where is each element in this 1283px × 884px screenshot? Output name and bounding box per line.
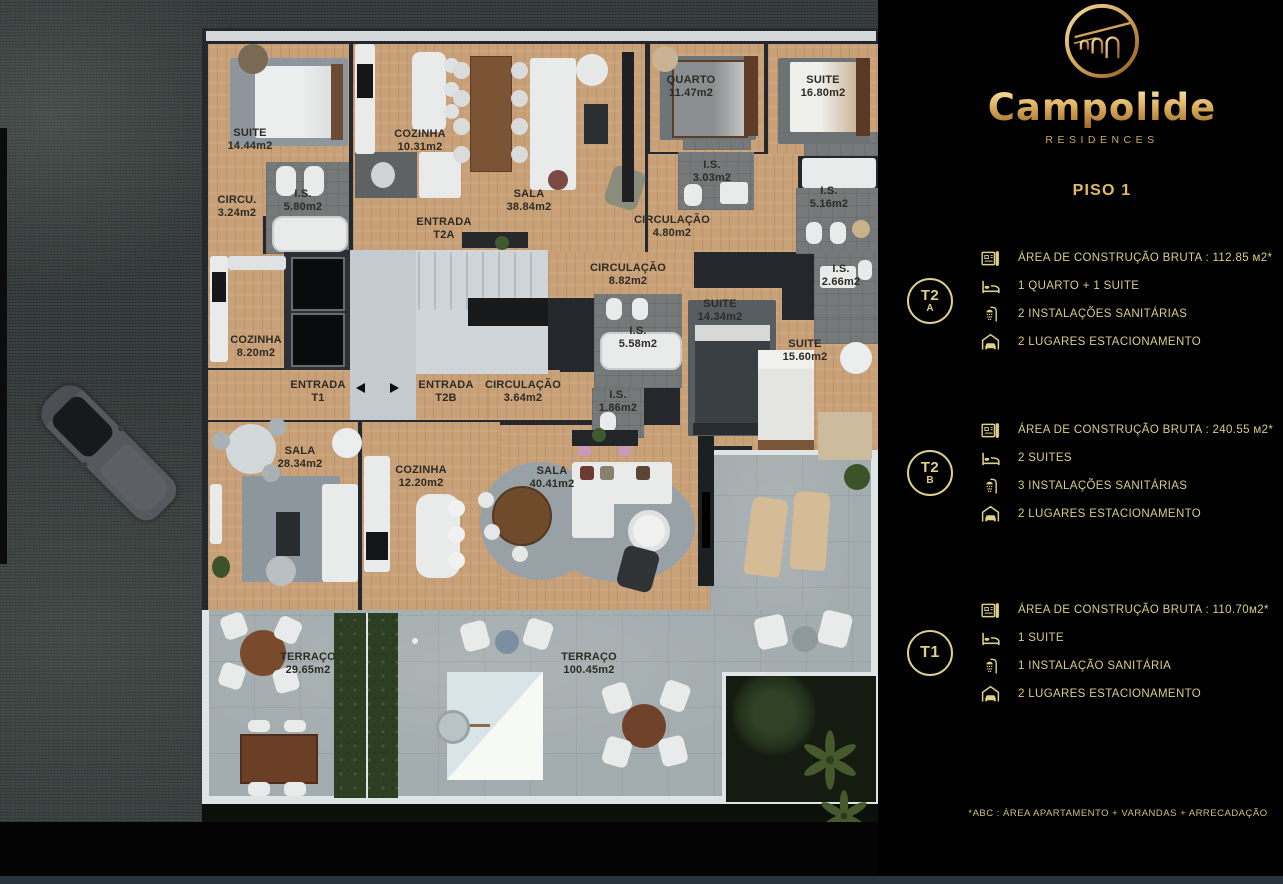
unit-feature-text: ÁREA DE CONSTRUÇÃO BRUTA : 240.55 м2* <box>1018 424 1273 436</box>
room-area: 5.58m2 <box>619 338 658 351</box>
chair <box>511 146 528 163</box>
brand-subtitle: RESIDENCES <box>922 134 1282 146</box>
dining-table <box>470 56 512 172</box>
panel-header: Campolide RESIDENCES PISO 1 <box>922 0 1282 200</box>
round-dining-table <box>492 486 552 546</box>
elevator-2 <box>291 313 345 367</box>
room-label: CIRCULAÇÃO4.80m2 <box>634 214 710 240</box>
bed-headboard <box>744 56 758 136</box>
shower-icon <box>980 656 1001 677</box>
garage-icon <box>980 332 1001 353</box>
floor-title: PISO 1 <box>922 182 1282 200</box>
room-label: TERRAÇO100.45m2 <box>561 651 617 677</box>
room-area: 8.20m2 <box>230 347 282 360</box>
chair <box>212 432 230 450</box>
unit-feature-text: 2 LUGARES ESTACIONAMENTO <box>1018 508 1201 520</box>
stool <box>618 446 631 456</box>
bathtub <box>272 216 348 252</box>
room-area: 2.66m2 <box>822 276 861 289</box>
room-name: I.S. <box>619 325 658 338</box>
room-name: I.S. <box>693 159 732 172</box>
toilet <box>806 222 822 244</box>
abc-footnote: *ABC : ÁREA APARTAMENTO + VARANDAS + ARR… <box>968 808 1268 819</box>
unit-feature-row: 2 LUGARES ESTACIONAMENTO <box>980 504 1201 524</box>
unit-section-t2a: T2 A ÁREA DE CONSTRUÇÃO BRUTA : 112.85 м… <box>878 246 1283 356</box>
basket <box>852 220 870 238</box>
unit-feature-row: 2 INSTALAÇÕES SANITÁRIAS <box>980 304 1187 324</box>
sun-lounger <box>789 491 830 571</box>
room-label: SALA38.84m2 <box>507 188 552 214</box>
chair <box>453 62 470 79</box>
car-mirror <box>117 424 125 432</box>
room-name: ENTRADA <box>416 216 471 229</box>
armchair <box>840 342 872 374</box>
room-name: COZINHA <box>230 334 282 347</box>
bathtub <box>802 158 876 188</box>
room-name: TERRAÇO <box>280 651 336 664</box>
unit-feature-row: 2 LUGARES ESTACIONAMENTO <box>980 684 1201 704</box>
room-label: SUITE14.44m2 <box>228 127 273 153</box>
round-chair <box>576 54 608 86</box>
room-area: 28.34m2 <box>278 458 323 471</box>
room-area: 3.64m2 <box>485 392 561 405</box>
render-bottom-black <box>0 822 880 884</box>
unit-feature-text: 2 LUGARES ESTACIONAMENTO <box>1018 336 1201 348</box>
room-name: SALA <box>278 445 323 458</box>
room-name: ENTRADA <box>290 379 345 392</box>
shower-icon <box>980 304 1001 325</box>
kitchen-counter <box>355 44 375 154</box>
chair <box>512 546 528 562</box>
room-label: I.S.2.66m2 <box>822 263 861 289</box>
room-area: 14.34m2 <box>698 311 743 324</box>
room-label: SALA40.41m2 <box>530 465 575 491</box>
room-name: CIRCULAÇÃO <box>485 379 561 392</box>
bed-headboard <box>331 64 343 140</box>
unit-feature-text: 1 SUITE <box>1018 632 1064 644</box>
room-name: SUITE <box>698 298 743 311</box>
unit-feature-row: 2 LUGARES ESTACIONAMENTO <box>980 332 1201 352</box>
unit-feature-text: 3 INSTALAÇÕES SANITÁRIAS <box>1018 480 1187 492</box>
room-label: I.S.3.03m2 <box>693 159 732 185</box>
room-label: ENTRADAT1 <box>290 379 345 405</box>
pillow <box>580 466 594 480</box>
room-area: 12.20m2 <box>395 477 447 490</box>
room-label: SALA28.34m2 <box>278 445 323 471</box>
campolide-floorplan-page: SUITE14.44m2 COZINHA10.31m2 SALA38.84m2 … <box>0 0 1283 884</box>
unit-feature-text: ÁREA DE CONSTRUÇÃO BRUTA : 112.85 м2* <box>1018 252 1272 264</box>
room-label: COZINHA12.20m2 <box>395 464 447 490</box>
palm-tree <box>798 728 862 792</box>
room-area: 5.16m2 <box>810 198 849 211</box>
shower-icon <box>980 476 1001 497</box>
chair <box>484 524 500 540</box>
bottom-edge-strip <box>0 876 1283 884</box>
garage-icon <box>980 684 1001 705</box>
room-area: 14.44m2 <box>228 140 273 153</box>
unit-badge-t2a: T2 A <box>907 278 953 324</box>
planter-divider <box>366 613 368 798</box>
room-name: TERRAÇO <box>561 651 617 664</box>
chair <box>511 90 528 107</box>
terrace-chair <box>284 720 306 732</box>
badge-letter: A <box>926 304 933 314</box>
coffee-table <box>276 512 300 556</box>
unit-feature-text: 1 INSTALAÇÃO SANITÁRIA <box>1018 660 1171 672</box>
room-area: T2B <box>418 392 473 405</box>
room-label: SUITE14.34m2 <box>698 298 743 324</box>
floorplan-icon <box>980 248 1001 269</box>
unit-feature-row: ÁREA DE CONSTRUÇÃO BRUTA : 112.85 м2* <box>980 248 1272 268</box>
room-label: I.S.5.58m2 <box>619 325 658 351</box>
chair <box>453 118 470 135</box>
chair <box>453 90 470 107</box>
badge-type: T2 <box>921 460 940 475</box>
bed-icon <box>980 628 1001 649</box>
unit-feature-text: 1 QUARTO + 1 SUITE <box>1018 280 1139 292</box>
room-name: SUITE <box>228 127 273 140</box>
bed-frame <box>758 440 814 450</box>
car-mirror <box>80 461 88 469</box>
room-area: 100.45m2 <box>561 664 617 677</box>
room-name: COZINHA <box>395 464 447 477</box>
room-name: CIRCU. <box>217 194 256 207</box>
unit-feature-text: 2 LUGARES ESTACIONAMENTO <box>1018 688 1201 700</box>
room-label: SUITE15.60m2 <box>783 338 828 364</box>
media-wall <box>622 52 634 202</box>
room-label: CIRCU.3.24m2 <box>217 194 256 220</box>
chair <box>478 492 494 508</box>
bed-icon <box>980 276 1001 297</box>
terrace-dining-table <box>240 734 318 784</box>
brand-wordmark: Campolide <box>922 86 1282 129</box>
sofa <box>322 484 358 582</box>
room-label: I.S.5.80m2 <box>284 188 323 214</box>
room-name: QUARTO <box>667 74 716 87</box>
kitchen-cabinets <box>228 256 286 270</box>
kitchen-island <box>412 52 446 132</box>
cooktop <box>212 272 226 302</box>
cooktop <box>357 64 373 98</box>
room-label: COZINHA8.20m2 <box>230 334 282 360</box>
garden-fringe <box>202 804 878 822</box>
pillow <box>600 466 614 480</box>
stair-landing <box>468 298 548 326</box>
fountain <box>436 710 470 744</box>
terrace-chair <box>248 782 270 796</box>
armchair <box>332 428 362 458</box>
bidet <box>632 298 648 320</box>
swivel-chair <box>266 556 296 586</box>
unit-feature-text: 2 SUITES <box>1018 452 1072 464</box>
room-name: I.S. <box>810 185 849 198</box>
terrace-chair <box>248 720 270 732</box>
chair <box>511 118 528 135</box>
bidet <box>830 222 846 244</box>
pillow <box>636 466 650 480</box>
room-name: COZINHA <box>394 128 446 141</box>
room-name: ENTRADA <box>418 379 473 392</box>
island-scallop <box>448 526 465 543</box>
room-area: 11.47m2 <box>667 87 716 100</box>
plant <box>495 236 509 250</box>
vanity <box>720 182 748 204</box>
unit-feature-row: 3 INSTALAÇÕES SANITÁRIAS <box>980 476 1187 496</box>
unit-feature-row: ÁREA DE CONSTRUÇÃO BRUTA : 240.55 м2* <box>980 420 1273 440</box>
room-name: SUITE <box>783 338 828 351</box>
terrace-chair <box>284 782 306 796</box>
room-area: 4.80m2 <box>634 227 710 240</box>
room-area: 3.24m2 <box>217 207 256 220</box>
room-area: 38.84m2 <box>507 201 552 214</box>
room-name: I.S. <box>284 188 323 201</box>
unit-badge-t2b: T2 B <box>907 450 953 496</box>
credenza <box>210 484 222 544</box>
badge-letter: B <box>926 476 933 486</box>
room-label: CIRCULAÇÃO8.82m2 <box>590 262 666 288</box>
unit-section-t1: T1 ÁREA DE CONSTRUÇÃO BRUTA : 110.70м2* … <box>878 598 1283 708</box>
floorplan-render: SUITE14.44m2 COZINHA10.31m2 SALA38.84m2 … <box>0 0 880 884</box>
terrace-chair <box>753 613 789 651</box>
toilet <box>606 298 622 320</box>
elevator-1 <box>291 257 345 311</box>
chair <box>268 418 286 436</box>
room-area: 15.60m2 <box>783 351 828 364</box>
lobby <box>350 250 416 420</box>
cooktop <box>366 532 388 560</box>
stool <box>444 104 459 119</box>
plant <box>592 428 606 442</box>
tv <box>702 492 710 548</box>
room-label: ENTRADAT2B <box>418 379 473 405</box>
room-area: T2A <box>416 229 471 242</box>
terrace-light <box>412 638 418 644</box>
floorplan-icon <box>980 420 1001 441</box>
terrace-table <box>792 626 818 652</box>
unit-feature-text: ÁREA DE CONSTRUÇÃO BRUTA : 110.70м2* <box>1018 604 1269 616</box>
washing-machine <box>371 162 395 188</box>
coffee-table <box>584 104 608 144</box>
room-area: 29.65m2 <box>280 664 336 677</box>
room-area: 8.82m2 <box>590 275 666 288</box>
bed-headboard <box>856 58 870 136</box>
unit-feature-row: 1 SUITE <box>980 628 1064 648</box>
room-area: 3.03m2 <box>693 172 732 185</box>
room-label: I.S.1.86m2 <box>599 389 638 415</box>
info-panel: Campolide RESIDENCES PISO 1 T2 A ÁREA DE… <box>878 0 1283 884</box>
room-label: CIRCULAÇÃO3.64m2 <box>485 379 561 405</box>
terrace-edge-left <box>202 610 209 804</box>
room-name: CIRCULAÇÃO <box>590 262 666 275</box>
unit-feature-row: 1 QUARTO + 1 SUITE <box>980 276 1139 296</box>
badge-type: T1 <box>920 645 940 661</box>
curb-edge <box>0 128 7 564</box>
room-name: CIRCULAÇÃO <box>634 214 710 227</box>
floorplan-icon <box>980 600 1001 621</box>
room-label: ENTRADAT2A <box>416 216 471 242</box>
room-label: TERRAÇO29.65m2 <box>280 651 336 677</box>
plant <box>844 464 870 490</box>
toilet <box>684 184 702 206</box>
chair <box>453 146 470 163</box>
bed-icon <box>980 448 1001 469</box>
island-scallop <box>448 552 465 569</box>
room-area: 40.41m2 <box>530 478 575 491</box>
badge-type: T2 <box>921 288 940 303</box>
rug <box>818 412 872 460</box>
entry-arrow-left <box>356 383 365 393</box>
island-scallop <box>448 500 465 517</box>
unit-badge-t1: T1 <box>907 630 953 676</box>
room-area: 5.80m2 <box>284 201 323 214</box>
room-name: I.S. <box>599 389 638 402</box>
armchair <box>238 44 268 74</box>
room-area: 1.86m2 <box>599 402 638 415</box>
unit-feature-row: 1 INSTALAÇÃO SANITÁRIA <box>980 656 1171 676</box>
top-balcony-strip <box>206 31 876 41</box>
room-name: SUITE <box>801 74 846 87</box>
unit-feature-text: 2 INSTALAÇÕES SANITÁRIAS <box>1018 308 1187 320</box>
plant <box>212 556 230 578</box>
room-label: SUITE16.80m2 <box>801 74 846 100</box>
room-area: 10.31m2 <box>394 141 446 154</box>
armchair <box>652 46 678 72</box>
room-area: T1 <box>290 392 345 405</box>
room-name: SALA <box>507 188 552 201</box>
room-label: I.S.5.16m2 <box>810 185 849 211</box>
sofa-chaise <box>572 500 614 538</box>
room-label: COZINHA10.31m2 <box>394 128 446 154</box>
chair <box>511 62 528 79</box>
unit-feature-row: ÁREA DE CONSTRUÇÃO BRUTA : 110.70м2* <box>980 600 1269 620</box>
terrace-table <box>495 630 519 654</box>
unit-section-t2b: T2 B ÁREA DE CONSTRUÇÃO BRUTA : 240.55 м… <box>878 418 1283 528</box>
room-name: I.S. <box>822 263 861 276</box>
room-area: 16.80m2 <box>801 87 846 100</box>
campolide-logo-icon <box>1063 2 1141 80</box>
garage-icon <box>980 504 1001 525</box>
entry-arrow-right <box>390 383 399 393</box>
room-label: QUARTO11.47m2 <box>667 74 716 100</box>
unit-feature-row: 2 SUITES <box>980 448 1072 468</box>
stool <box>578 446 591 456</box>
room-name: SALA <box>530 465 575 478</box>
